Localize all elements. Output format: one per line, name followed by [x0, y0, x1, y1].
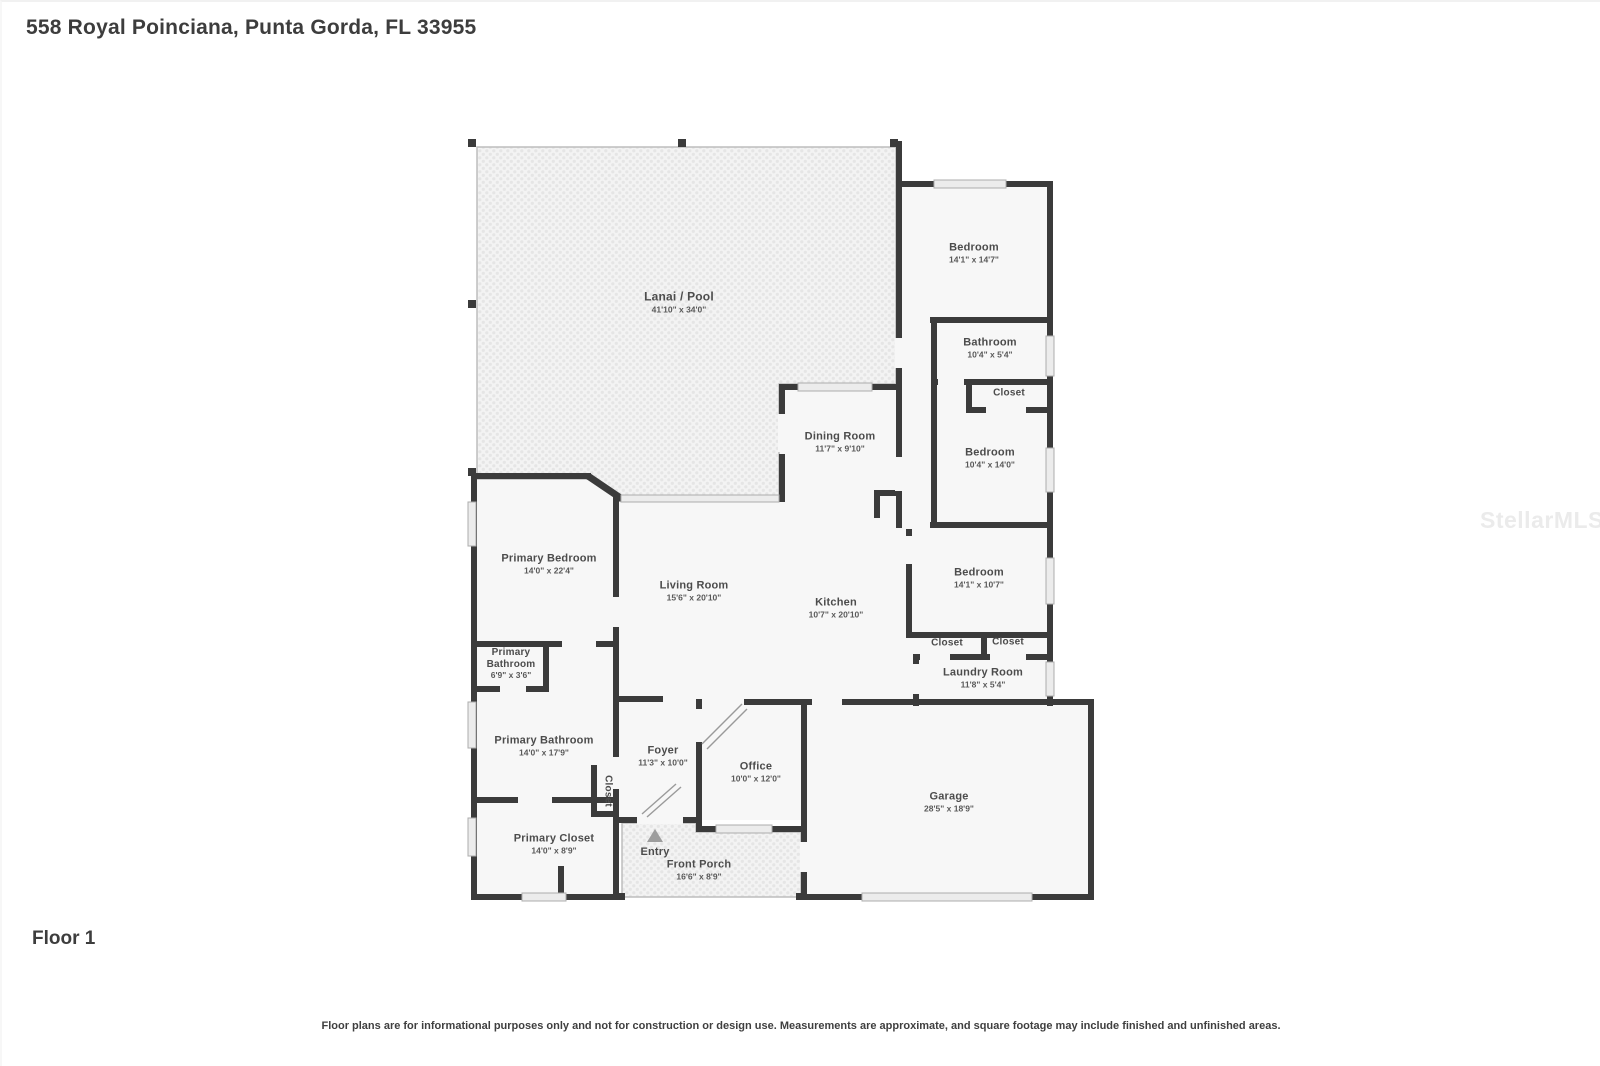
disclaimer-text: Floor plans are for informational purpos… — [2, 1020, 1600, 1032]
floor-plan-page: 558 Royal Poinciana, Punta Gorda, FL 339… — [0, 0, 1600, 1066]
floor-label: Floor 1 — [32, 928, 95, 950]
front-porch-area — [622, 823, 801, 897]
floor-plan-drawing — [2, 2, 1600, 1066]
stellar-mls-watermark: StellarMLS — [1480, 507, 1600, 534]
